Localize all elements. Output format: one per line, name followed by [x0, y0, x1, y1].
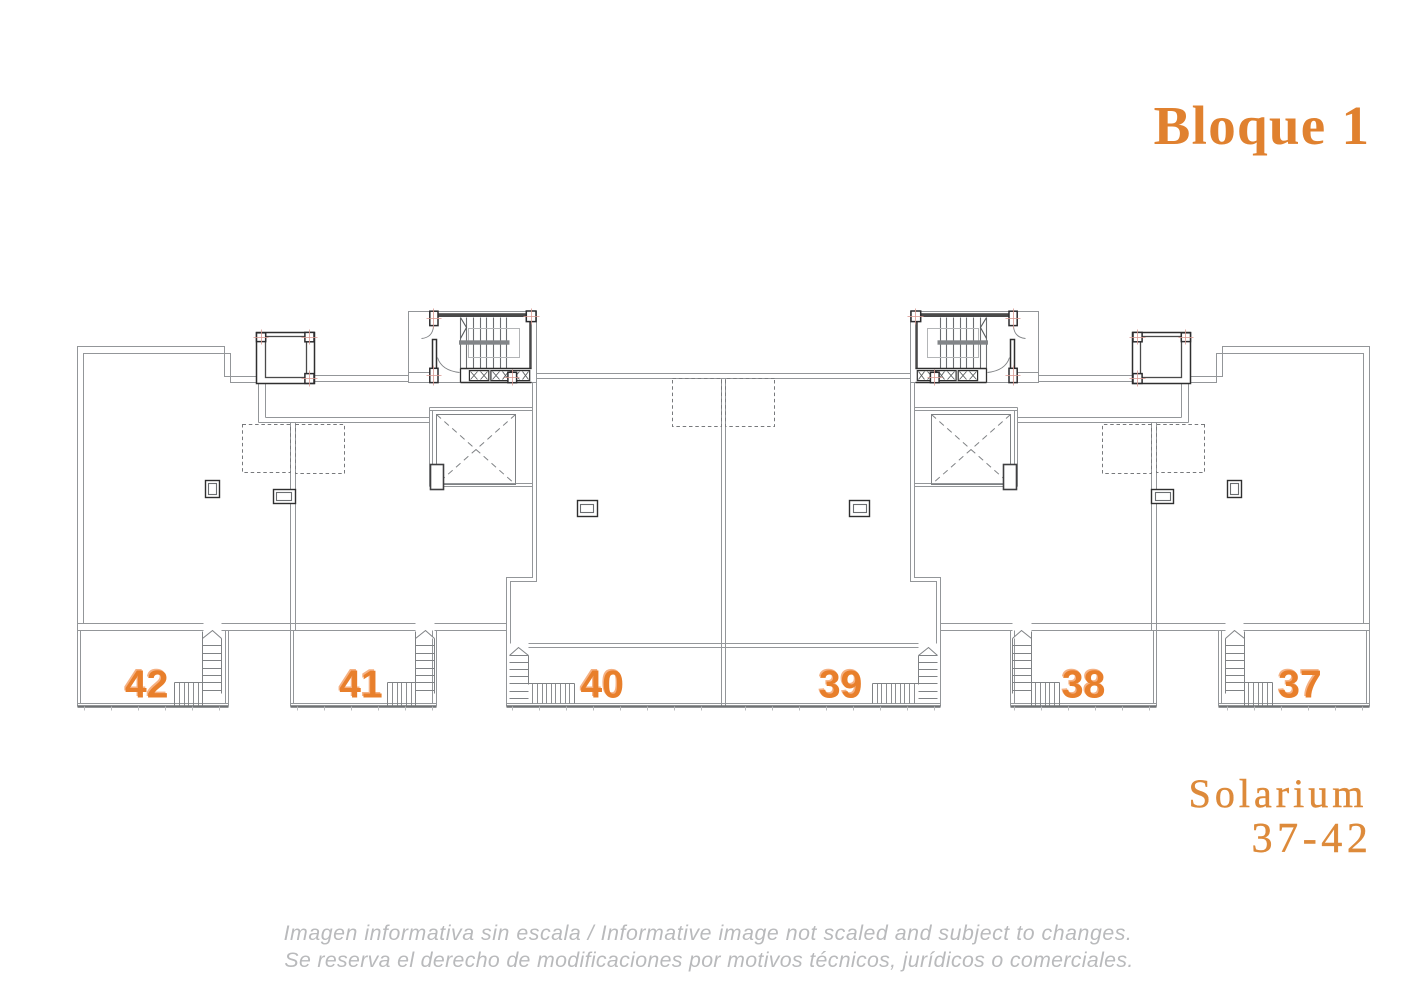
svg-text:42: 42	[125, 664, 168, 707]
svg-text:38: 38	[1062, 664, 1105, 707]
svg-text:Bloque 1: Bloque 1	[1154, 95, 1371, 156]
svg-text:Se reserva el derecho de modif: Se reserva el derecho de modificaciones …	[284, 948, 1133, 972]
svg-text:39: 39	[819, 664, 862, 707]
svg-text:Solarium: Solarium	[1189, 771, 1368, 816]
svg-text:40: 40	[581, 664, 624, 707]
svg-text:41: 41	[339, 664, 382, 707]
svg-text:Imagen informativa sin escala: Imagen informativa sin escala / Informat…	[284, 921, 1133, 945]
svg-text:37: 37	[1278, 664, 1321, 707]
svg-text:37-42: 37-42	[1252, 816, 1373, 862]
